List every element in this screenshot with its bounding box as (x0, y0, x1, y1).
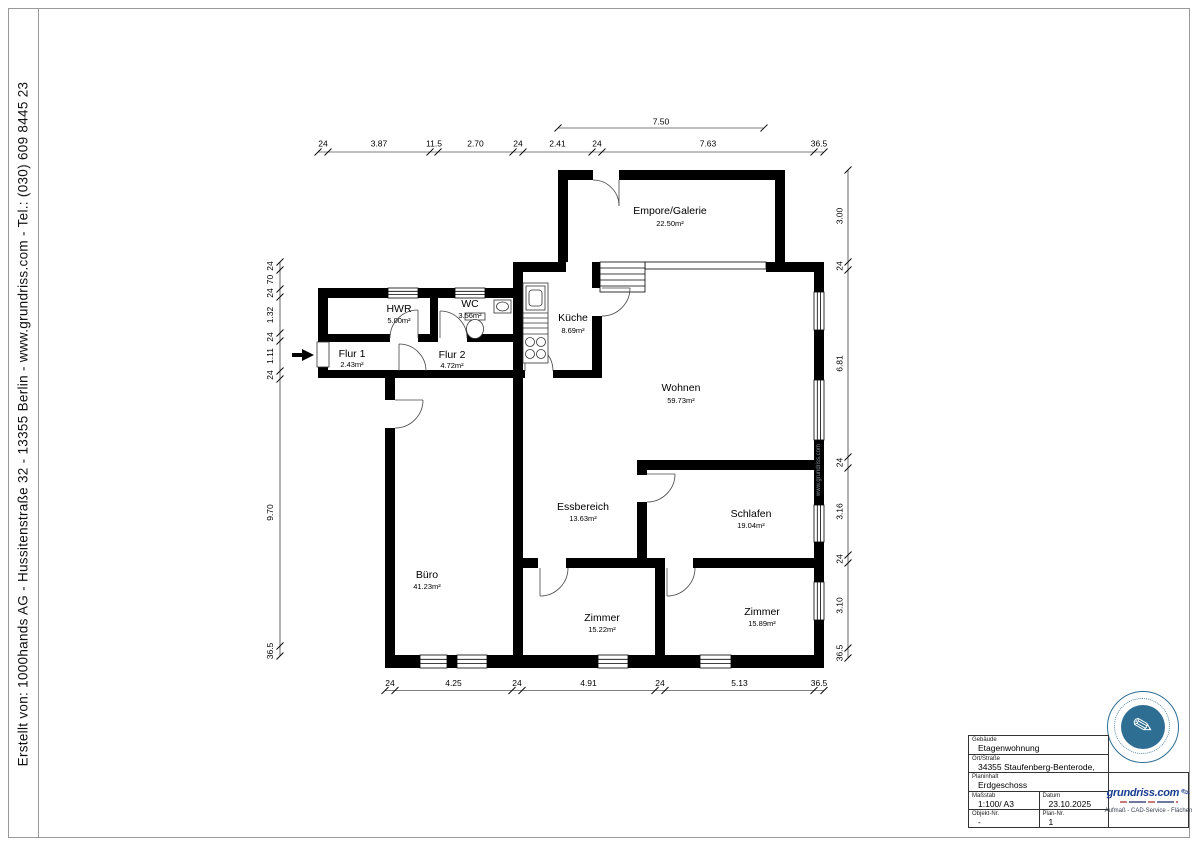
svg-text:41.23m²: 41.23m² (413, 582, 441, 591)
svg-text:Büro: Büro (416, 569, 438, 581)
svg-text:3.87: 3.87 (371, 139, 388, 149)
room-label-flur2: Flur 24.72m² (439, 349, 466, 370)
field-massstab: Maßstab 1:100/ A3 (969, 791, 1039, 809)
svg-text:24: 24 (835, 554, 845, 564)
walls (318, 170, 824, 668)
svg-text:15.89m²: 15.89m² (748, 619, 776, 628)
svg-text:36.5: 36.5 (811, 139, 828, 149)
field-value: - (969, 817, 1039, 827)
svg-text:15.22m²: 15.22m² (588, 625, 616, 634)
plan-watermark: www.grundriss.com (816, 444, 822, 497)
svg-text:24: 24 (265, 261, 275, 271)
svg-text:2.43m²: 2.43m² (340, 360, 364, 369)
window (700, 655, 731, 668)
svg-text:3.56m²: 3.56m² (458, 311, 482, 320)
svg-text:Flur 2: Flur 2 (439, 349, 466, 361)
svg-text:8.69m²: 8.69m² (561, 326, 585, 335)
window (457, 655, 487, 668)
title-block-table: Gebäude Etagenwohnung Ort/Straße 34355 S… (968, 735, 1109, 828)
field-label: Plan-Nr. (1040, 810, 1109, 817)
entrance-arrow (292, 349, 314, 361)
svg-text:22.50m²: 22.50m² (656, 219, 684, 228)
window (455, 288, 485, 298)
field-objekt-nr: Objekt-Nr. - (969, 809, 1039, 827)
svg-text:Flur 1: Flur 1 (339, 348, 366, 360)
room-label-schlafen: Schlafen19.04m² (731, 508, 772, 530)
field-label: Planinhalt (969, 773, 1108, 780)
svg-text:2.70: 2.70 (467, 139, 484, 149)
door-buero (395, 400, 423, 428)
window (814, 582, 824, 620)
field-datum: Datum 23.10.2025 (1039, 791, 1109, 809)
svg-text:Zimmer: Zimmer (744, 606, 780, 618)
logo-tagline: Aufmaß - CAD-Service - Flächen (1105, 808, 1193, 814)
svg-text:4.72m²: 4.72m² (440, 361, 464, 370)
field-value: Etagenwohnung (969, 743, 1108, 753)
svg-text:24: 24 (385, 678, 395, 688)
room-label-buero: Büro41.23m² (413, 569, 441, 591)
svg-text:13.63m²: 13.63m² (569, 514, 597, 523)
field-label: Datum (1040, 792, 1109, 799)
svg-text:11.5: 11.5 (426, 139, 442, 149)
door-schlafen (647, 474, 675, 502)
pencil-icon: ✎ (1179, 785, 1192, 800)
room-label-hwr: HWR5.00m² (386, 303, 411, 325)
field-value: 34355 Staufenberg-Benterode, (969, 762, 1108, 772)
svg-text:24: 24 (513, 139, 523, 149)
dimension-labels: 7.50 24 3.87 11.5 2.70 24 2.41 24 7.63 3… (265, 117, 845, 689)
svg-text:36.5: 36.5 (835, 644, 845, 661)
room-label-zimmer2: Zimmer15.89m² (744, 606, 780, 628)
title-block: Gebäude Etagenwohnung Ort/Straße 34355 S… (968, 735, 1189, 828)
svg-text:Essbereich: Essbereich (557, 501, 609, 513)
svg-text:24: 24 (592, 139, 602, 149)
svg-text:Schlafen: Schlafen (731, 508, 772, 520)
svg-text:36.5: 36.5 (265, 642, 275, 659)
floor-plan-page: Erstellt von: 1000hands AG - Hussitenstr… (0, 0, 1200, 848)
field-planinhalt: Planinhalt Erdgeschoss (969, 772, 1108, 790)
svg-text:9.70: 9.70 (265, 504, 275, 521)
window (814, 292, 824, 330)
svg-text:19.04m²: 19.04m² (737, 521, 765, 530)
room-label-zimmer1: Zimmer15.22m² (584, 612, 620, 634)
svg-text:1.11: 1.11 (265, 348, 275, 364)
svg-text:3.16: 3.16 (835, 503, 845, 520)
svg-text:WC: WC (461, 298, 479, 310)
svg-text:24: 24 (265, 332, 275, 342)
dim-top-span: 7.50 (653, 117, 670, 127)
door-empore (593, 180, 619, 206)
svg-text:3.10: 3.10 (835, 597, 845, 614)
svg-text:70: 70 (265, 275, 275, 285)
svg-text:2.41: 2.41 (549, 139, 566, 149)
field-plan-nr: Plan-Nr. 1 (1039, 809, 1109, 827)
door-zimmer1 (540, 568, 568, 596)
door-flur (399, 344, 426, 371)
field-ort: Ort/Straße 34355 Staufenberg-Benterode, (969, 754, 1108, 772)
svg-text:1.32: 1.32 (265, 306, 275, 323)
svg-text:24: 24 (835, 261, 845, 271)
window (814, 380, 824, 440)
door-zimmer2 (667, 568, 695, 596)
field-value: 1 (1040, 817, 1109, 827)
svg-text:24: 24 (655, 678, 665, 688)
field-value: Erdgeschoss (969, 780, 1108, 790)
logo-cell: grundriss.com ✎ Aufmaß - CAD-Service - F… (1108, 772, 1189, 828)
room-label-flur1: Flur 12.43m² (339, 348, 366, 369)
svg-text:24: 24 (835, 458, 845, 468)
window (598, 655, 628, 668)
svg-text:7.63: 7.63 (700, 139, 717, 149)
svg-text:24: 24 (265, 370, 275, 380)
room-label-wohnen: Wohnen59.73m² (662, 382, 701, 405)
window (814, 505, 824, 542)
svg-text:3.00: 3.00 (835, 207, 845, 224)
svg-text:4.25: 4.25 (445, 678, 462, 688)
svg-text:Zimmer: Zimmer (584, 612, 620, 624)
svg-text:24: 24 (318, 139, 328, 149)
window (388, 288, 418, 298)
kitchen-sink-icon (526, 286, 545, 310)
svg-text:6.81: 6.81 (835, 355, 845, 372)
field-gebaeude: Gebäude Etagenwohnung (969, 736, 1108, 754)
room-label-kueche: Küche8.69m² (558, 312, 588, 335)
svg-text:24: 24 (512, 678, 522, 688)
gallery-railing (645, 262, 766, 269)
room-label-essbereich: Essbereich13.63m² (557, 501, 609, 523)
svg-text:5.00m²: 5.00m² (387, 316, 411, 325)
svg-text:Küche: Küche (558, 312, 588, 324)
field-label: Gebäude (969, 736, 1108, 743)
logo-subtext-line (1120, 801, 1178, 803)
svg-text:24: 24 (265, 288, 275, 298)
stairs (600, 262, 645, 292)
field-label: Maßstab (969, 792, 1039, 799)
room-label-wc: WC3.56m² (458, 298, 482, 320)
grundriss-logo: grundriss.com (1107, 787, 1180, 799)
entrance-door (317, 342, 329, 367)
svg-text:36.5: 36.5 (811, 678, 828, 688)
room-label-empore: Empore/Galerie22.50m² (633, 205, 707, 228)
svg-text:HWR: HWR (386, 303, 411, 315)
window (420, 655, 447, 668)
field-label: Objekt-Nr. (969, 810, 1039, 817)
svg-text:Empore/Galerie: Empore/Galerie (633, 205, 707, 217)
field-value: 23.10.2025 (1040, 799, 1109, 809)
svg-text:5.13: 5.13 (731, 678, 748, 688)
svg-text:Wohnen: Wohnen (662, 382, 701, 394)
kitchen-fixtures (523, 283, 548, 363)
field-label: Ort/Straße (969, 755, 1108, 762)
floor-plan-drawing: 7.50 24 3.87 11.5 2.70 24 2.41 24 7.63 3… (0, 0, 1200, 848)
svg-text:4.91: 4.91 (580, 678, 597, 688)
field-value: 1:100/ A3 (969, 799, 1039, 809)
svg-text:59.73m²: 59.73m² (667, 396, 695, 405)
wc-sink-icon (494, 300, 511, 313)
